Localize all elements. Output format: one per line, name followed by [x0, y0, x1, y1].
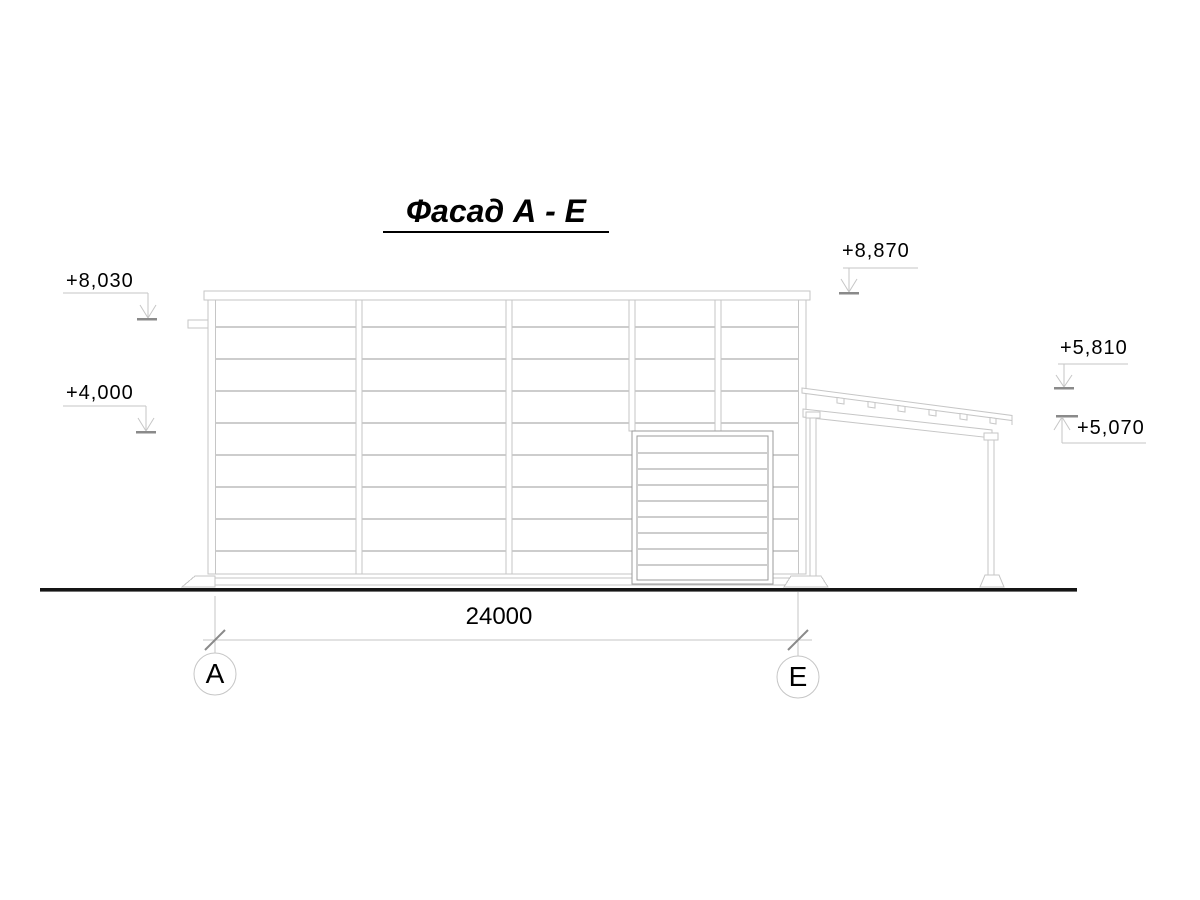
drawing-linework — [0, 0, 1200, 900]
door-frame-outer — [632, 431, 773, 584]
drawing-title: Фасад А - Е — [383, 193, 609, 233]
level-label-4000: +4,000 — [66, 383, 134, 403]
post-right-footing — [980, 575, 1004, 587]
dimension-label: 24000 — [433, 605, 565, 629]
level-mark-4000 — [63, 406, 156, 432]
footing-left — [182, 576, 215, 587]
level-label-5810: +5,810 — [1060, 338, 1128, 358]
scupper — [188, 320, 208, 328]
post-left-capital — [806, 412, 820, 418]
level-mark-5810 — [1054, 364, 1128, 388]
post-right — [988, 440, 994, 576]
level-label-8030: +8,030 — [66, 271, 134, 291]
level-label-5070: +5,070 — [1077, 418, 1145, 438]
parapet-cap — [204, 291, 810, 300]
elevation-sheet: Фасад А - Е +8,030 +4,000 +8,870 +5,810 … — [0, 0, 1200, 900]
post-left — [810, 418, 816, 576]
footing-right — [784, 576, 828, 587]
post-right-capital — [984, 433, 998, 440]
axis-label-a: А — [195, 654, 235, 694]
level-mark-8870 — [839, 268, 918, 293]
canopy — [802, 388, 1012, 587]
level-mark-8030 — [63, 293, 157, 319]
garage-door — [632, 431, 773, 584]
axis-label-e: Е — [778, 657, 818, 697]
ground-line — [40, 588, 1077, 592]
level-label-8870: +8,870 — [842, 241, 910, 261]
